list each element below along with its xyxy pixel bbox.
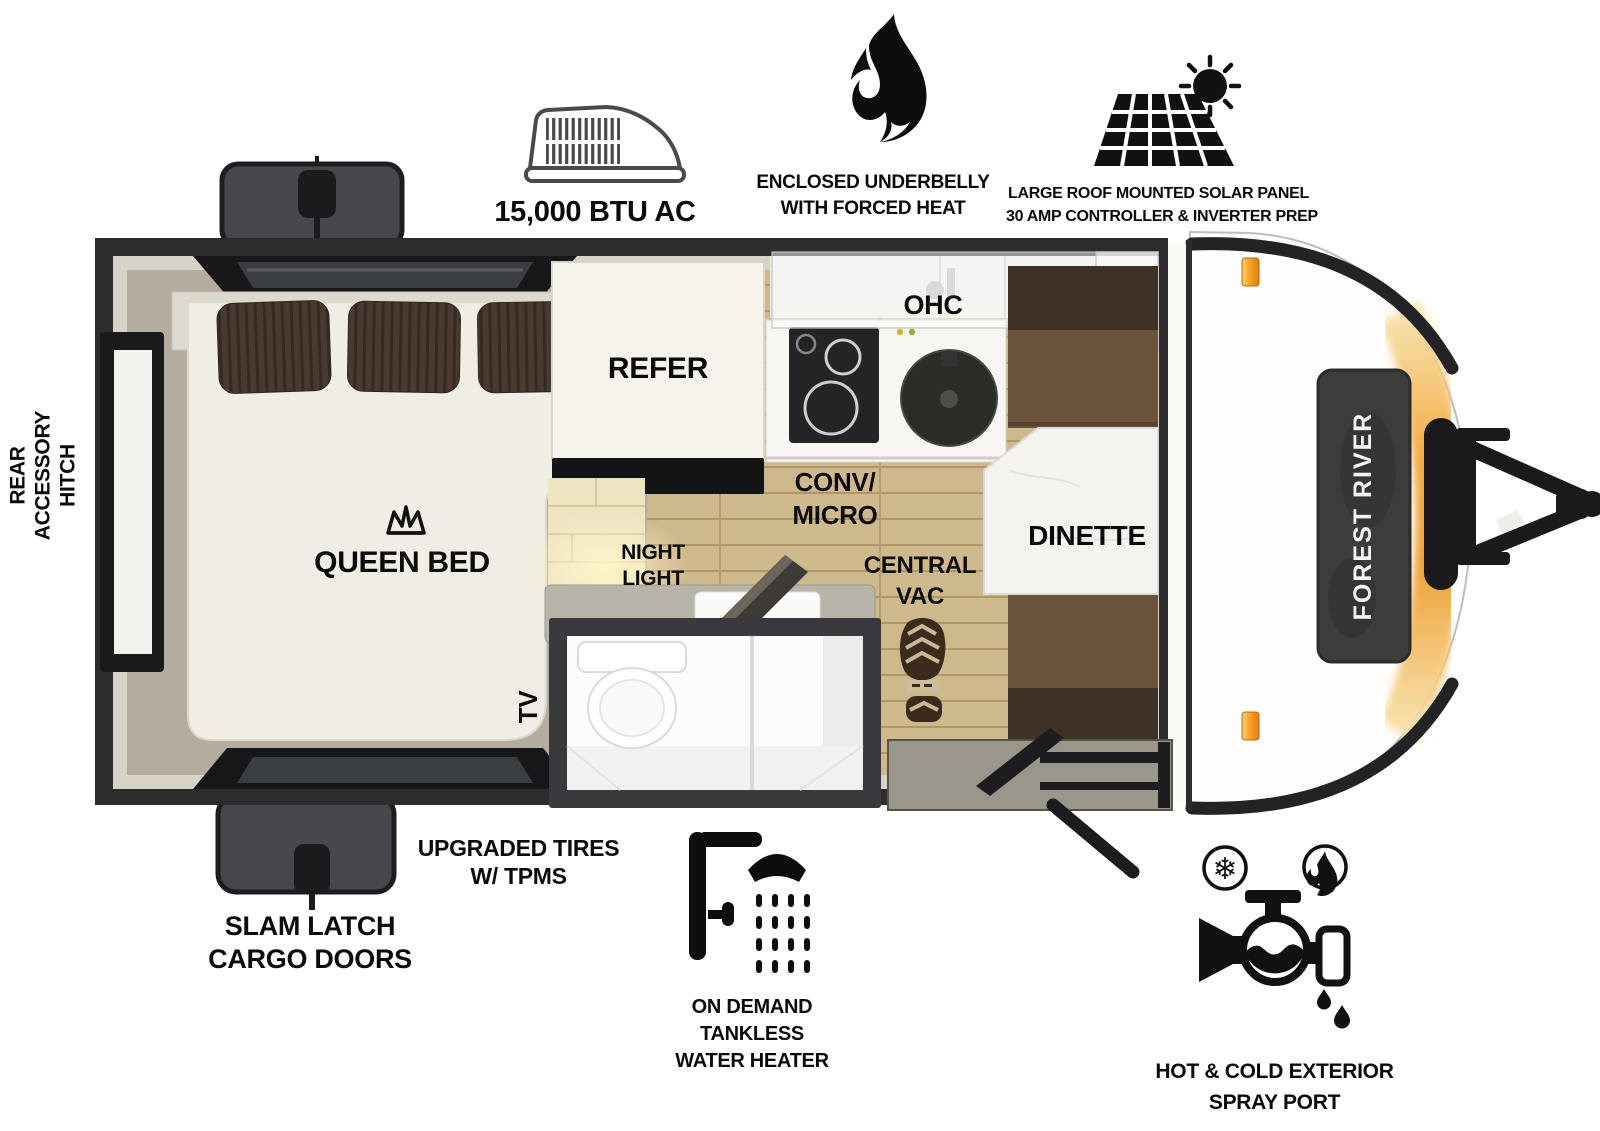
night-light-label: NIGHT LIGHT — [578, 540, 728, 592]
ac-label: 15,000 BTU AC — [440, 194, 750, 232]
bootprint-icon — [900, 618, 945, 722]
snowflake-icon: ❄ — [1212, 852, 1237, 887]
solar-label: LARGE ROOF MOUNTED SOLAR PANEL 30 AMP CO… — [1006, 182, 1311, 228]
rear-hitch-label: REAR ACCESSORY HITCH — [6, 388, 81, 564]
hitch — [1424, 418, 1600, 590]
hot-flame-icon — [1307, 851, 1338, 896]
ac-unit-icon — [518, 104, 696, 188]
sink-icon — [901, 350, 997, 446]
brand-badge-label: FOREST RIVER — [1347, 376, 1381, 656]
bedroom-skylight-bottom — [193, 748, 577, 789]
entry-step — [888, 728, 1172, 872]
dinette-area — [984, 266, 1158, 746]
refer-label: REFER — [558, 349, 758, 388]
rear-window — [100, 332, 164, 672]
floorplan-diagram: ❄ 15,000 BTU AC ENCLOSED UNDERBELLY WITH… — [0, 0, 1600, 1131]
dinette-label: DINETTE — [962, 518, 1212, 554]
water-heater-label: ON DEMAND TANKLESS WATER HEATER — [602, 994, 902, 1075]
spray-port-label: HOT & COLD EXTERIOR SPRAY PORT — [1122, 1056, 1427, 1118]
pillow — [216, 300, 590, 394]
ohc-label: OHC — [858, 288, 1008, 323]
queen-bed-label: QUEEN BED — [252, 543, 552, 582]
conv-micro-label: CONV/ MICRO — [735, 466, 935, 532]
central-vac-label: CENTRAL VAC — [820, 550, 1020, 612]
cargo-door-top-icon — [222, 156, 402, 246]
tv-label: TV — [512, 677, 546, 737]
flame-icon — [836, 10, 940, 160]
underbelly-label: ENCLOSED UNDERBELLY WITH FORCED HEAT — [722, 170, 1024, 222]
slam-latch-label: SLAM LATCH CARGO DOORS — [155, 910, 465, 976]
cooktop-icon — [789, 327, 879, 443]
bedroom-skylight-top — [193, 256, 577, 296]
shower-icon — [684, 826, 826, 978]
tires-label: UPGRADED TIRES W/ TPMS — [366, 834, 671, 890]
spray-port-icon: ❄ — [1193, 841, 1361, 1037]
bathroom — [549, 618, 881, 808]
grab-handle-icon — [1053, 805, 1133, 872]
crown-icon — [383, 503, 427, 537]
solar-panel-icon — [1088, 54, 1244, 174]
